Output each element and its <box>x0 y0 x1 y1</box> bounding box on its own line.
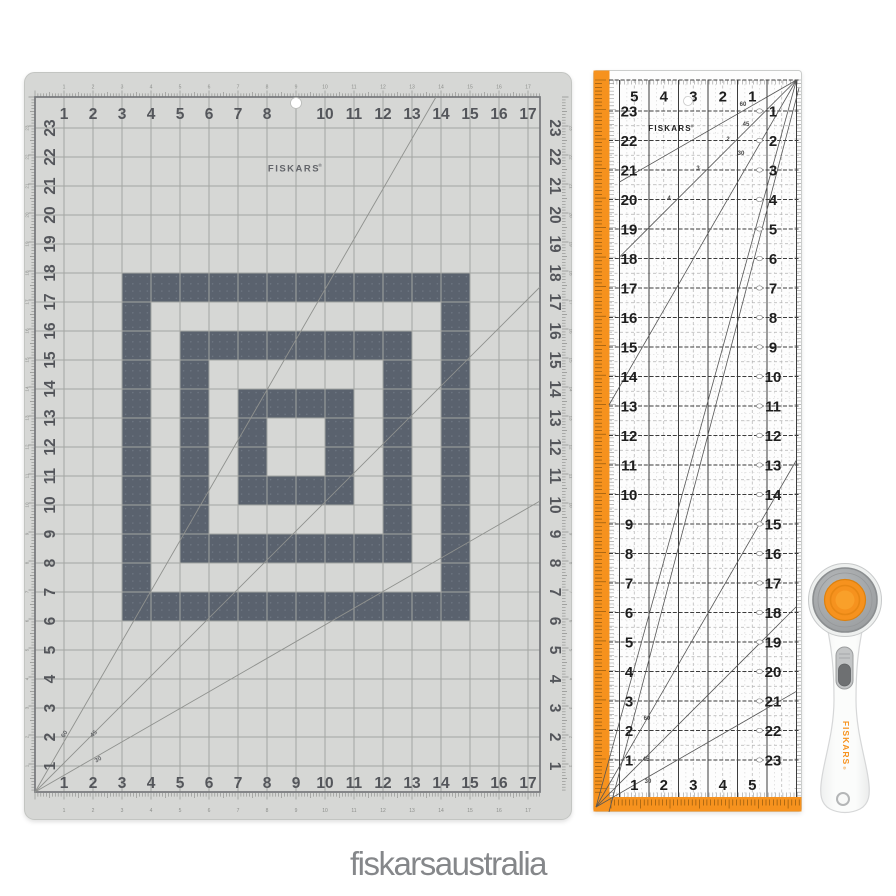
mat-tiny-number-right: 6 <box>569 620 573 623</box>
mat-number-left: 18 <box>42 264 59 282</box>
mat-pattern-cell <box>123 361 151 389</box>
mat-pattern-cell <box>123 390 151 418</box>
mat-tiny-number-bottom: 11 <box>351 808 356 814</box>
mat-number-bottom: 3 <box>118 775 127 792</box>
mat-tiny-number-right: 7 <box>569 591 573 594</box>
cutter-hub-center <box>836 591 855 610</box>
mat-number-left: 17 <box>42 293 59 310</box>
ruler-number-left: 7 <box>625 575 633 592</box>
ruler-angle-label-top: 60 <box>740 102 747 108</box>
mat-tiny-number-left: 10 <box>25 502 30 508</box>
mat-tiny-number-top: 15 <box>467 85 473 91</box>
mat-number-bottom: 13 <box>403 775 421 792</box>
mat-pattern-cell <box>268 274 296 302</box>
mat-tiny-number-left: 5 <box>25 648 30 651</box>
quilting-ruler: 6045306045302345432112345232221201918171… <box>593 70 802 812</box>
ruler-number-left: 23 <box>621 103 638 120</box>
mat-number-top: 10 <box>316 106 333 123</box>
mat-pattern-cell <box>326 448 354 476</box>
mat-tiny-number-right: 11 <box>569 474 573 479</box>
mat-pattern-cell <box>384 593 412 621</box>
mat-number-right: 21 <box>546 177 563 195</box>
ruler-number-right: 8 <box>769 310 777 327</box>
mat-tiny-number-right: 2 <box>569 736 573 739</box>
mat-number-left: 12 <box>42 438 59 455</box>
ruler-number-right: 4 <box>769 192 778 209</box>
mat-number-left: 14 <box>42 380 59 398</box>
mat-number-right: 17 <box>546 293 563 310</box>
mat-number-right: 10 <box>546 496 563 513</box>
mat-tiny-number-right: 3 <box>569 707 573 710</box>
mat-number-right: 3 <box>546 704 563 713</box>
ruler-number-right: 14 <box>765 487 782 504</box>
mat-pattern-cell <box>123 506 151 534</box>
mat-tiny-number-right: 4 <box>569 678 573 681</box>
mat-tiny-number-top: 14 <box>438 85 444 91</box>
mat-pattern-cell <box>123 274 151 302</box>
mat-pattern-cell <box>123 477 151 505</box>
mat-number-left: 1 <box>42 761 59 770</box>
ruler-number-bottom: 1 <box>630 777 638 794</box>
mat-tiny-number-right: 13 <box>569 415 573 421</box>
mat-tiny-number-right: 21 <box>569 183 573 189</box>
mat-tiny-number-left: 16 <box>25 328 30 334</box>
mat-pattern-cell <box>355 593 383 621</box>
mat-number-bottom: 9 <box>292 775 301 792</box>
quilting-ruler-graphic: 6045306045302345432112345232221201918171… <box>593 70 802 812</box>
mat-brand-logo: FISKARS <box>268 164 320 175</box>
ruler-angle-label-top: 45 <box>743 122 750 128</box>
mat-tiny-number-top: 10 <box>322 85 328 91</box>
mat-tiny-number-left: 13 <box>25 415 30 421</box>
mat-number-bottom: 1 <box>60 775 69 792</box>
mat-pattern-cell <box>268 593 296 621</box>
ruler-inch-marker <box>757 728 763 732</box>
ruler-number-right: 19 <box>765 634 782 651</box>
ruler-number-left: 6 <box>625 605 633 622</box>
cutting-mat: 1122334455667788991010111112121313141415… <box>24 72 572 820</box>
ruler-number-left: 15 <box>621 339 638 356</box>
mat-pattern-cell <box>297 593 325 621</box>
product-image-stage: 1122334455667788991010111112121313141415… <box>0 0 896 896</box>
mat-pattern-cell <box>384 361 412 389</box>
mat-tiny-number-right: 1 <box>569 765 573 768</box>
mat-number-left: 19 <box>42 235 59 253</box>
mat-number-bottom: 4 <box>147 775 156 792</box>
ruler-number-left: 3 <box>625 693 633 710</box>
mat-pattern-cell <box>239 274 267 302</box>
mat-number-right: 15 <box>546 351 563 369</box>
ruler-number-left: 2 <box>625 723 633 740</box>
ruler-inch-marker <box>757 138 763 142</box>
mat-pattern-cell <box>413 274 441 302</box>
cutting-mat-graphic: 1122334455667788991010111112121313141415… <box>24 72 572 820</box>
mat-body <box>25 73 572 820</box>
mat-pattern-cell <box>442 564 470 592</box>
ruler-inch-marker <box>757 581 763 585</box>
ruler-inch-marker <box>757 197 763 201</box>
ruler-number-right: 23 <box>765 752 782 769</box>
mat-tiny-number-right: 23 <box>569 125 573 131</box>
ruler-number-right: 6 <box>769 251 777 268</box>
mat-pattern-cell <box>297 390 325 418</box>
mat-pattern-cell <box>123 419 151 447</box>
mat-number-right: 8 <box>546 559 563 568</box>
ruler-hanging-hole <box>684 97 693 106</box>
mat-number-right: 9 <box>546 530 563 539</box>
mat-tiny-number-right: 22 <box>569 154 573 160</box>
mat-tiny-number-left: 4 <box>25 677 30 680</box>
ruler-number-right: 11 <box>765 398 781 415</box>
mat-pattern-cell <box>239 535 267 563</box>
mat-pattern-cell <box>181 419 209 447</box>
ruler-number-right: 22 <box>765 723 782 740</box>
mat-tiny-number-right: 18 <box>569 270 573 276</box>
mat-pattern-cell <box>268 390 296 418</box>
mat-pattern-cell <box>384 477 412 505</box>
ruler-number-bottom: 2 <box>660 777 668 794</box>
ruler-inch-marker <box>757 463 763 467</box>
ruler-number-right: 12 <box>765 428 782 445</box>
ruler-number-left: 10 <box>621 487 638 504</box>
ruler-number-left: 16 <box>621 310 638 327</box>
mat-pattern-cell <box>355 535 383 563</box>
mat-tiny-number-bottom: 17 <box>525 808 531 814</box>
mat-pattern-cell <box>297 332 325 360</box>
mat-number-left: 9 <box>42 529 59 538</box>
mat-pattern-cell <box>210 593 238 621</box>
mat-number-right: 23 <box>546 119 563 137</box>
ruler-number-right: 9 <box>769 339 777 356</box>
ruler-number-right: 17 <box>765 575 782 592</box>
mat-pattern-cell <box>268 477 296 505</box>
ruler-inch-marker <box>757 522 763 526</box>
mat-tiny-number-bottom: 4 <box>150 808 153 814</box>
mat-tiny-number-bottom: 8 <box>266 808 269 814</box>
mat-pattern-cell <box>123 564 151 592</box>
cutter-brand-logo: FISKARS <box>841 721 851 765</box>
mat-pattern-cell <box>384 419 412 447</box>
mat-tiny-number-top: 7 <box>237 85 240 91</box>
ruler-inch-marker <box>757 286 763 290</box>
mat-number-left: 16 <box>42 322 59 340</box>
mat-pattern-cell <box>181 390 209 418</box>
ruler-inch-marker <box>757 404 763 408</box>
mat-pattern-cell <box>442 535 470 563</box>
mat-pattern-cell <box>123 535 151 563</box>
mat-number-right: 7 <box>546 588 563 597</box>
mat-tiny-number-top: 17 <box>525 85 531 91</box>
mat-number-left: 13 <box>42 409 59 427</box>
mat-tiny-number-right: 15 <box>569 357 573 363</box>
ruler-number-right: 7 <box>769 280 777 297</box>
mat-tiny-number-left: 19 <box>25 241 30 247</box>
mat-tiny-number-left: 8 <box>25 561 30 564</box>
mat-tiny-number-right: 8 <box>569 562 573 565</box>
mat-number-bottom: 17 <box>519 775 536 792</box>
mat-number-right: 11 <box>546 468 563 485</box>
ruler-number-right: 10 <box>765 369 782 386</box>
mat-number-left: 10 <box>42 496 59 513</box>
mat-pattern-cell <box>384 535 412 563</box>
mat-tiny-number-right: 20 <box>569 212 573 218</box>
mat-tiny-number-left: 17 <box>25 299 30 305</box>
ruler-number-right: 21 <box>765 693 782 710</box>
mat-number-right: 16 <box>546 322 563 340</box>
ruler-number-left: 20 <box>621 192 638 209</box>
mat-number-right: 19 <box>546 235 563 253</box>
mat-tiny-number-right: 17 <box>569 299 573 305</box>
mat-pattern-cell <box>210 274 238 302</box>
ruler-number-left: 18 <box>621 251 638 268</box>
ruler-inch-marker <box>757 256 763 260</box>
mat-pattern-cell <box>123 332 151 360</box>
mat-pattern-cell <box>210 332 238 360</box>
ruler-number-top: 4 <box>660 89 669 106</box>
ruler-angle-label-bottom: 30 <box>645 779 652 785</box>
mat-number-top: 5 <box>176 106 185 123</box>
mat-pattern-cell <box>123 303 151 331</box>
ruler-number-left: 17 <box>621 280 638 297</box>
mat-number-right: 6 <box>546 617 563 626</box>
mat-tiny-number-left: 20 <box>25 212 30 218</box>
mat-pattern-cell <box>442 332 470 360</box>
mat-tiny-number-top: 4 <box>150 85 153 91</box>
mat-tiny-number-top: 12 <box>380 85 386 91</box>
mat-tiny-number-left: 1 <box>25 764 30 767</box>
mat-pattern-cell <box>442 303 470 331</box>
mat-number-top: 13 <box>403 106 421 123</box>
ruler-number-right: 2 <box>769 133 777 150</box>
rotary-cutter: FISKARS® <box>806 552 890 814</box>
ruler-inch-marker <box>757 758 763 762</box>
ruler-number-left: 19 <box>621 221 638 238</box>
mat-pattern-cell <box>152 274 180 302</box>
mat-tiny-number-right: 16 <box>569 328 573 334</box>
mat-number-top: 1 <box>60 106 69 123</box>
brand-caption: fiskarsaustralia <box>0 845 896 883</box>
ruler-brand-reg: ® <box>691 124 694 129</box>
ruler-inch-marker <box>757 551 763 555</box>
ruler-number-left: 21 <box>621 162 638 179</box>
ruler-number-left: 11 <box>621 457 637 474</box>
ruler-number-right: 3 <box>769 162 777 179</box>
mat-number-right: 1 <box>546 762 563 771</box>
mat-number-top: 3 <box>118 106 127 123</box>
mat-tiny-number-left: 23 <box>25 125 30 131</box>
ruler-inch-marker <box>757 109 763 113</box>
mat-number-bottom: 12 <box>374 775 391 792</box>
mat-pattern-cell <box>152 593 180 621</box>
mat-pattern-cell <box>181 361 209 389</box>
mat-tiny-number-right: 19 <box>569 241 573 247</box>
mat-number-top: 14 <box>432 106 450 123</box>
mat-tiny-number-bottom: 6 <box>208 808 211 814</box>
mat-number-top: 15 <box>461 106 479 123</box>
mat-pattern-cell <box>355 332 383 360</box>
mat-pattern-cell <box>442 419 470 447</box>
ruler-number-left: 4 <box>625 664 634 681</box>
ruler-inch-marker <box>757 492 763 496</box>
mat-tiny-number-top: 9 <box>295 85 298 91</box>
mat-tiny-number-top: 11 <box>351 85 356 91</box>
mat-pattern-cell <box>442 361 470 389</box>
mat-tiny-number-bottom: 14 <box>438 808 444 814</box>
mat-number-right: 4 <box>546 675 563 684</box>
mat-pattern-cell <box>442 593 470 621</box>
mat-tiny-number-left: 6 <box>25 619 30 622</box>
mat-pattern-cell <box>413 593 441 621</box>
mat-tiny-number-bottom: 3 <box>121 808 124 814</box>
ruler-number-bottom: 5 <box>748 777 756 794</box>
mat-tiny-number-left: 14 <box>25 386 30 392</box>
mat-pattern-cell <box>355 274 383 302</box>
mat-pattern-cell <box>181 593 209 621</box>
ruler-inch-marker <box>757 315 763 319</box>
ruler-inch-marker <box>757 610 763 614</box>
mat-pattern-cell <box>442 506 470 534</box>
mat-pattern-cell <box>239 477 267 505</box>
mat-number-bottom: 16 <box>490 775 508 792</box>
mat-tiny-number-left: 9 <box>25 532 30 535</box>
mat-number-right: 20 <box>546 206 563 223</box>
ruler-number-right: 5 <box>769 221 777 238</box>
mat-number-bottom: 7 <box>234 775 243 792</box>
ruler-inch-marker <box>757 433 763 437</box>
ruler-number-right: 16 <box>765 546 782 563</box>
mat-pattern-cell <box>181 448 209 476</box>
ruler-number-left: 13 <box>621 398 638 415</box>
mat-tiny-number-right: 5 <box>569 649 573 652</box>
mat-tiny-number-bottom: 5 <box>179 808 182 814</box>
ruler-number-top: 1 <box>748 89 756 106</box>
mat-number-top: 7 <box>234 106 243 123</box>
mat-number-left: 11 <box>42 467 59 484</box>
mat-pattern-cell <box>442 274 470 302</box>
ruler-number-left: 8 <box>625 546 633 563</box>
ruler-inch-marker <box>757 699 763 703</box>
mat-number-left: 8 <box>42 558 59 567</box>
ruler-inch-marker <box>757 640 763 644</box>
mat-number-top: 2 <box>89 106 98 123</box>
mat-tiny-number-left: 21 <box>25 183 30 189</box>
mat-tiny-number-left: 12 <box>25 444 30 450</box>
ruler-inch-marker <box>757 345 763 349</box>
cutter-brand-reg: ® <box>842 767 847 770</box>
mat-number-left: 5 <box>42 645 59 654</box>
mat-tiny-number-top: 2 <box>92 85 95 91</box>
mat-pattern-cell <box>384 506 412 534</box>
mat-tiny-number-bottom: 15 <box>467 808 473 814</box>
mat-pattern-cell <box>239 390 267 418</box>
mat-tiny-number-left: 15 <box>25 357 30 363</box>
mat-number-bottom: 5 <box>176 775 185 792</box>
mat-pattern-cell <box>442 390 470 418</box>
mat-pattern-cell <box>181 477 209 505</box>
mat-pattern-cell <box>181 332 209 360</box>
ruler-inch-marker <box>757 227 763 231</box>
mat-pattern-cell <box>297 477 325 505</box>
mat-tiny-number-bottom: 7 <box>237 808 240 814</box>
mat-number-top: 17 <box>519 106 536 123</box>
mat-number-left: 4 <box>42 674 59 683</box>
mat-tiny-number-left: 7 <box>25 590 30 593</box>
mat-tiny-number-top: 3 <box>121 85 124 91</box>
mat-number-left: 7 <box>42 588 59 597</box>
mat-pattern-cell <box>384 448 412 476</box>
mat-number-bottom: 11 <box>346 775 363 792</box>
mat-pattern-cell <box>239 332 267 360</box>
mat-pattern-cell <box>239 448 267 476</box>
ruler-number-left: 5 <box>625 634 633 651</box>
mat-number-bottom: 15 <box>461 775 479 792</box>
mat-tiny-number-top: 5 <box>179 85 182 91</box>
mat-number-top: 16 <box>490 106 508 123</box>
mat-tiny-number-top: 1 <box>63 85 66 91</box>
mat-number-right: 18 <box>546 264 563 282</box>
mat-tiny-number-top: 13 <box>409 85 415 91</box>
mat-pattern-cell <box>268 535 296 563</box>
mat-number-right: 12 <box>546 438 563 455</box>
mat-number-top: 4 <box>147 106 156 123</box>
ruler-inch-marker <box>757 669 763 673</box>
mat-number-left: 2 <box>42 733 59 742</box>
ruler-number-right: 20 <box>765 664 782 681</box>
mat-tiny-number-right: 12 <box>569 444 573 450</box>
mat-tiny-number-bottom: 16 <box>496 808 502 814</box>
mat-pattern-cell <box>384 274 412 302</box>
mat-pattern-cell <box>268 332 296 360</box>
ruler-number-right: 18 <box>765 605 782 622</box>
ruler-orange-left-strip <box>594 71 610 812</box>
mat-pattern-cell <box>210 535 238 563</box>
mat-number-left: 23 <box>42 119 59 137</box>
ruler-inch-marker <box>757 374 763 378</box>
mat-pattern-cell <box>181 274 209 302</box>
ruler-orange-bottom-strip <box>594 797 802 812</box>
mat-pattern-cell <box>442 477 470 505</box>
mat-tiny-number-bottom: 1 <box>63 808 66 814</box>
mat-pattern-cell <box>384 390 412 418</box>
mat-tiny-number-left: 22 <box>25 154 30 160</box>
mat-pattern-cell <box>326 477 354 505</box>
ruler-number-right: 13 <box>765 457 782 474</box>
mat-number-top: 11 <box>346 106 363 123</box>
mat-number-left: 22 <box>42 148 59 165</box>
mat-pattern-cell <box>326 419 354 447</box>
mat-number-bottom: 6 <box>205 775 214 792</box>
mat-number-bottom: 2 <box>89 775 98 792</box>
mat-number-right: 13 <box>546 409 563 427</box>
mat-number-top: 6 <box>205 106 214 123</box>
mat-pattern-cell <box>326 332 354 360</box>
mat-number-right: 2 <box>546 733 563 742</box>
mat-number-top: 12 <box>374 106 391 123</box>
ruler-angle-label-top: 30 <box>738 151 745 157</box>
mat-number-bottom: 8 <box>263 775 272 792</box>
rotary-cutter-graphic: FISKARS® <box>806 552 890 814</box>
mat-pattern-cell <box>239 593 267 621</box>
mat-pattern-cell <box>326 390 354 418</box>
ruler-number-left: 9 <box>625 516 633 533</box>
mat-number-left: 15 <box>42 351 59 369</box>
mat-tiny-number-left: 3 <box>25 706 30 709</box>
mat-pattern-cell <box>384 332 412 360</box>
mat-number-bottom: 10 <box>316 775 333 792</box>
mat-pattern-cell <box>181 506 209 534</box>
mat-tiny-number-bottom: 2 <box>92 808 95 814</box>
mat-pattern-cell <box>297 535 325 563</box>
